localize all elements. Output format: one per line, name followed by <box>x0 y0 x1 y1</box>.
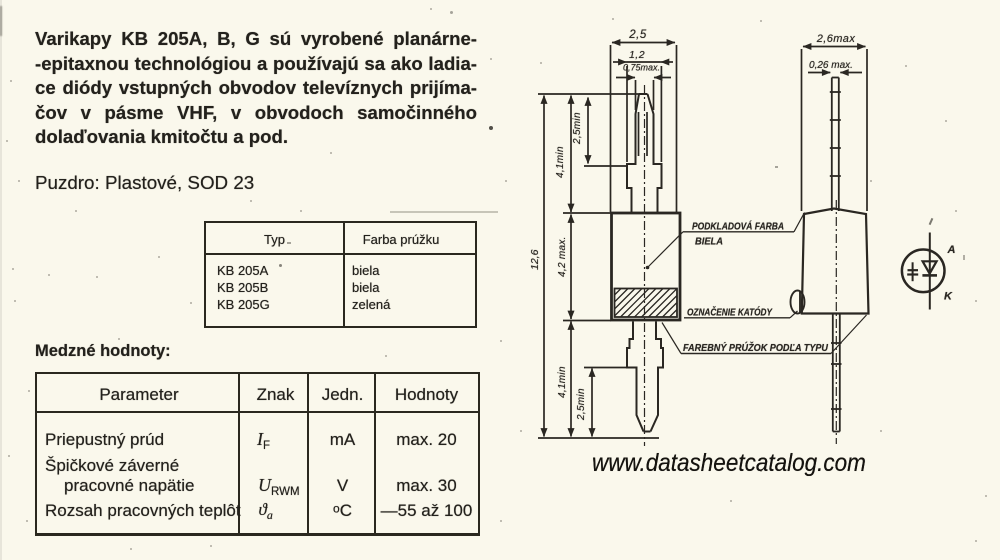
svg-text:FAREBNÝ PRÚŽOK PODĽA TYPU: FAREBNÝ PRÚŽOK PODĽA TYPU <box>683 341 828 354</box>
svg-text:2,6max: 2,6max <box>816 33 856 45</box>
svg-text:0,75max.: 0,75max. <box>623 63 660 73</box>
svg-text:12,6: 12,6 <box>529 249 541 270</box>
svg-text:BIELA: BIELA <box>695 236 723 248</box>
svg-text:4,1min: 4,1min <box>557 366 568 398</box>
svg-text:2,5: 2,5 <box>628 29 647 41</box>
svg-text:2,5min: 2,5min <box>572 112 583 145</box>
svg-text:A: A <box>947 244 956 256</box>
svg-text:0,26 max.: 0,26 max. <box>809 60 853 71</box>
svg-text:4,1min: 4,1min <box>555 146 566 178</box>
svg-text:PODKLADOVÁ FARBA: PODKLADOVÁ FARBA <box>692 220 784 233</box>
svg-text:2,5min: 2,5min <box>576 388 587 421</box>
svg-text:K: K <box>944 291 953 303</box>
svg-text:4,2 max.: 4,2 max. <box>557 236 568 277</box>
svg-text:OZNAČENIE KATÓDY: OZNAČENIE KATÓDY <box>687 306 773 319</box>
svg-text:1,2: 1,2 <box>629 49 645 61</box>
